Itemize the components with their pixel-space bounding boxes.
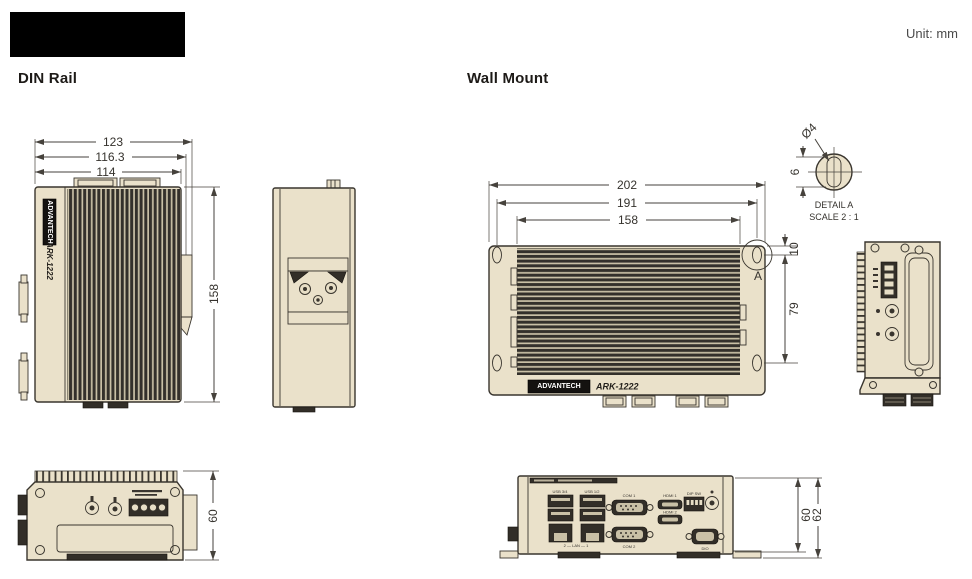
svg-text:79: 79 — [787, 302, 801, 316]
svg-text:114: 114 — [96, 165, 115, 179]
svg-text:USB 1/2: USB 1/2 — [585, 489, 601, 494]
svg-text:202: 202 — [617, 178, 637, 192]
detail-a-label: DETAIL A — [815, 200, 854, 210]
mechanical-drawing-page: Unit: mm DIN Rail Wall Mount — [0, 0, 972, 579]
wall-flange-left — [500, 551, 518, 558]
dimension-62: 62 — [763, 478, 824, 558]
screw — [171, 546, 180, 555]
screw — [171, 488, 180, 497]
svg-text:USB 3/4: USB 3/4 — [553, 489, 569, 494]
wall-mount-bottom-view: USB 3/4 USB 1/2 2 — LAN — 1 COM 1 COM 2 — [488, 452, 828, 577]
din-bracket — [288, 258, 348, 324]
usb-lan-stack-1: USB 3/4 — [548, 489, 573, 542]
svg-text:10: 10 — [787, 242, 801, 256]
svg-text:158: 158 — [618, 213, 638, 227]
wall-mount-side-view — [843, 222, 958, 422]
bottom-connectors — [883, 394, 933, 406]
detail-a-marker: A — [754, 269, 762, 283]
chassis-top-face — [27, 482, 183, 560]
redacted-title-block — [10, 12, 185, 57]
svg-text:HDMI 2: HDMI 2 — [663, 510, 677, 515]
screw — [901, 244, 909, 252]
din-rail-front-view: ADVANTECH ARK-1222 123 116.3 114 — [8, 122, 240, 422]
screw — [930, 382, 937, 389]
dimension-60: 60 — [735, 478, 822, 552]
din-rail-bottom-view: 60 — [5, 452, 245, 577]
foot — [293, 407, 315, 412]
screw — [870, 382, 877, 389]
svg-text:158: 158 — [207, 284, 221, 304]
screw — [36, 546, 45, 555]
svg-text:COM 2: COM 2 — [623, 544, 636, 549]
detail-a-scale: SCALE 2 : 1 — [809, 212, 859, 222]
wall-mount-heading: Wall Mount — [467, 70, 548, 87]
fin-comb-edge — [857, 252, 865, 372]
foot — [108, 402, 128, 408]
din-rail-heading: DIN Rail — [18, 70, 77, 87]
svg-text:116.3: 116.3 — [95, 150, 124, 164]
side-connector-bump — [508, 527, 518, 541]
svg-text:191: 191 — [617, 196, 637, 210]
unit-label: Unit: mm — [906, 26, 958, 41]
din-rail-side-view — [253, 158, 368, 418]
model-vertical: ARK-1222 — [45, 241, 54, 280]
dimension-10: 10 — [764, 234, 801, 256]
wall-mount-front-view: A ADVANTECH ARK-1222 202 191 — [462, 128, 807, 428]
din-bracket-edge — [183, 495, 197, 550]
foot — [558, 552, 600, 558]
left-connectors — [19, 275, 28, 400]
bottom-connectors — [603, 396, 728, 407]
screw — [871, 244, 879, 252]
brand-name-vertical: ADVANTECH — [46, 200, 53, 243]
heatsink-fins — [67, 189, 180, 400]
svg-text:123: 123 — [103, 135, 123, 149]
dip-switch: DIP SW — [684, 491, 704, 511]
svg-text:Ø4: Ø4 — [798, 120, 819, 141]
detail-a-view: Ø4 6 DETAIL A SCALE 2 : 1 — [788, 112, 903, 230]
svg-text:COM 1: COM 1 — [623, 493, 636, 498]
svg-text:ARK-1222: ARK-1222 — [595, 382, 639, 392]
dimension-202: 202 — [489, 178, 765, 242]
brand-label: ADVANTECH ARK-1222 — [528, 380, 639, 393]
svg-text:DIO: DIO — [701, 546, 708, 551]
svg-text:6: 6 — [788, 168, 802, 175]
embossed-mark — [534, 480, 554, 482]
foot-strip — [67, 554, 167, 560]
foot — [83, 402, 103, 408]
dimension-79: 79 — [764, 255, 801, 363]
embossed-mark — [558, 480, 592, 482]
svg-text:60: 60 — [206, 509, 220, 523]
left-connectors — [18, 495, 27, 545]
foot — [677, 552, 720, 558]
heatsink-fins — [517, 248, 740, 375]
din-clip — [181, 255, 192, 335]
svg-text:ADVANTECH: ADVANTECH — [537, 383, 580, 390]
usb-lan-stack-2: USB 1/2 — [580, 489, 605, 542]
lan-label: 2 — LAN — 1 — [564, 543, 589, 548]
svg-text:DIP SW: DIP SW — [687, 491, 701, 496]
svg-text:HDMI 1: HDMI 1 — [663, 493, 677, 498]
dimension-158: 158 — [517, 213, 740, 244]
fin-comb — [35, 471, 177, 482]
svg-text:62: 62 — [810, 508, 824, 522]
screw — [36, 489, 45, 498]
